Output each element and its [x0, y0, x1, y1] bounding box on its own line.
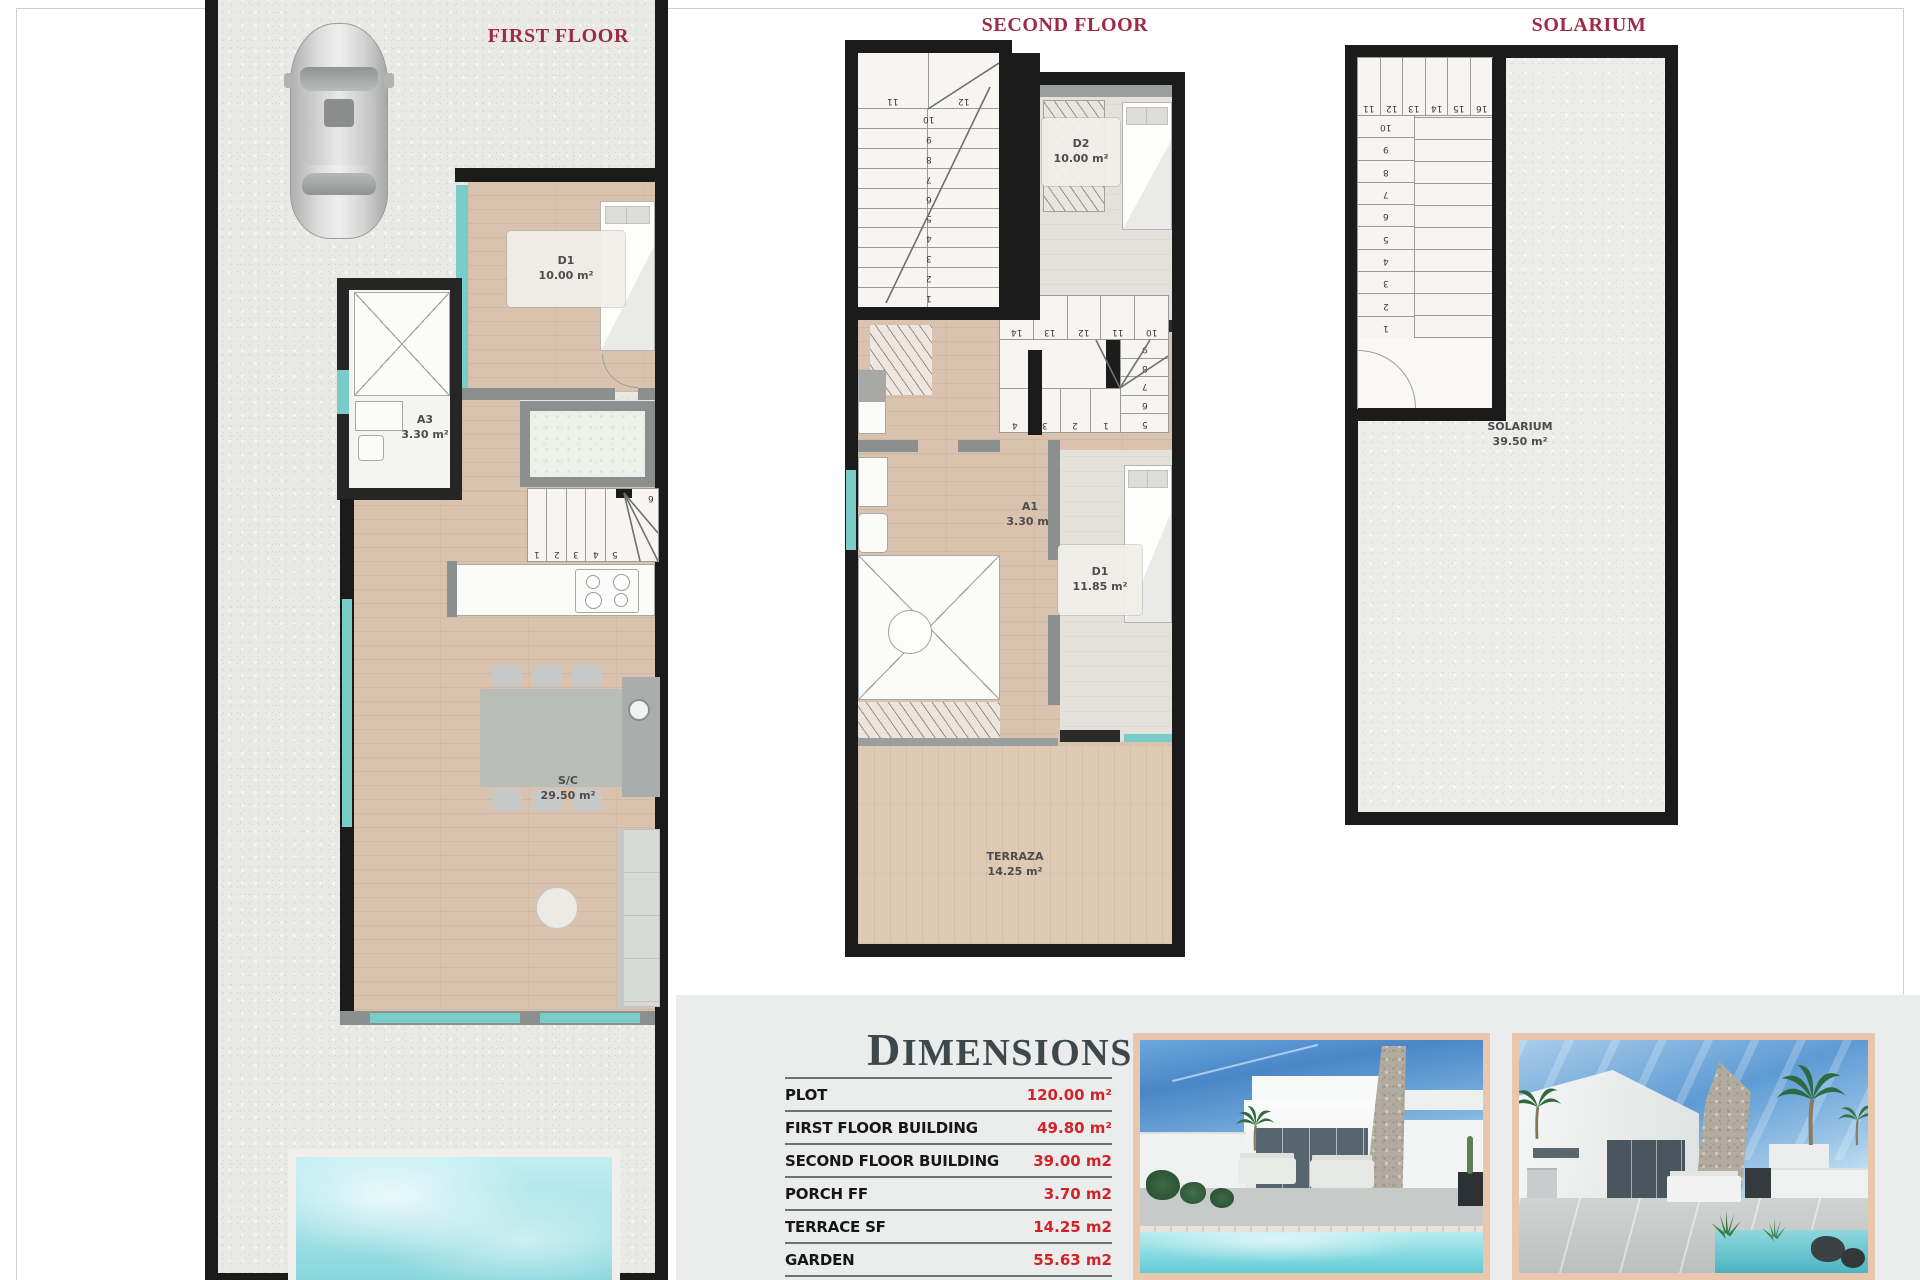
stair-number: 6 — [648, 493, 654, 503]
dining-table — [480, 689, 622, 787]
dimensions-title: DIMENSIONS — [850, 1023, 1150, 1076]
stair-step: 11 — [1358, 58, 1381, 115]
first-floor-staircase: 12345 6 — [528, 489, 658, 561]
pool-water — [1140, 1232, 1483, 1273]
room-label-plate: D1 10.00 m² — [507, 231, 625, 307]
pool — [288, 1149, 620, 1280]
stair-right-wall — [1492, 58, 1506, 421]
stair-corner-step: 6 — [648, 493, 654, 503]
stair-step: 3 — [567, 489, 586, 561]
planter-box — [1458, 1172, 1483, 1206]
dimension-value: 120.00 m² — [1027, 1086, 1112, 1104]
room-code: SOLARIUM — [1450, 420, 1590, 435]
pergola-bar — [1040, 85, 1172, 97]
stair-column: 10987654321 — [858, 109, 999, 307]
stair-newel — [616, 489, 632, 498]
room-code: D1 — [1073, 565, 1128, 580]
terrace-floor — [858, 746, 1172, 944]
d1-left-wall — [1048, 440, 1060, 560]
stair-step: 3 — [1358, 272, 1414, 294]
room-code: A3 — [390, 413, 460, 428]
room-label-d2: D2 10.00 m² — [1054, 137, 1109, 167]
solarium-stair: 111213141516 10987654321 — [1358, 58, 1492, 408]
car-top-view — [290, 23, 388, 239]
bedroom-top-wall — [455, 168, 655, 182]
washbasin — [858, 457, 888, 507]
pouf — [536, 887, 578, 929]
island-sink — [628, 699, 650, 721]
stair-step: 12 — [1068, 296, 1102, 339]
dimension-label: SECOND FLOOR BUILDING — [785, 1152, 999, 1170]
room-label-plate: D1 11.85 m² — [1058, 545, 1142, 615]
stair-flight-bottom: 4321 — [1000, 388, 1120, 432]
sun-lounger — [1310, 1160, 1374, 1188]
stair-step: 7 — [858, 169, 999, 189]
first-floor-plot: FIRST FLOOR D1 10.00 m² — [205, 0, 668, 1280]
stair-divider-wall — [1106, 340, 1120, 388]
dimension-label: FIRST FLOOR BUILDING — [785, 1119, 978, 1137]
stair-step: 1 — [1358, 317, 1414, 338]
stair-side-wall — [1028, 350, 1042, 435]
room-label-d1: D1 10.00 m² — [539, 254, 594, 284]
palm-tree — [1232, 1100, 1278, 1152]
dimension-label: PORCH FF — [785, 1185, 868, 1203]
pillow — [626, 206, 650, 224]
dimension-value: 14.25 m2 — [1033, 1218, 1112, 1236]
stair-step: 4 — [1000, 389, 1030, 432]
room-label-terraza: TERRAZA 14.25 m² — [950, 850, 1080, 880]
car-sunroof — [324, 99, 354, 127]
agave-plant — [1757, 1216, 1791, 1242]
pillow — [1126, 107, 1148, 125]
stair-step: 10 — [858, 109, 999, 129]
stair-step: 5 — [858, 209, 999, 229]
car-rear-window — [302, 173, 376, 195]
stair-step: 1 — [1091, 389, 1120, 432]
terrace-divider — [858, 738, 1058, 746]
car-mirror-left — [284, 73, 294, 88]
stair-step: 4 — [586, 489, 605, 561]
stair-step: 10 — [1358, 116, 1414, 138]
room-area: 3.30 m² — [390, 428, 460, 443]
bath-wall — [858, 440, 918, 452]
dimension-value: 49.80 m² — [1037, 1119, 1112, 1137]
kitchen-island — [622, 677, 660, 797]
dimension-row: TERRACE SF 14.25 m2 — [785, 1209, 1112, 1242]
palm-tree — [1835, 1092, 1875, 1150]
dimension-row: FIRST FLOOR BUILDING 49.80 m² — [785, 1110, 1112, 1143]
stair-top-row: 111213141516 — [1358, 58, 1492, 116]
dining-chair — [492, 665, 522, 687]
stair-step: 2 — [1061, 389, 1091, 432]
cactus — [1467, 1136, 1473, 1174]
solarium-title: SOLARIUM — [1504, 14, 1674, 37]
hall-floor — [462, 399, 520, 491]
bath-wall — [958, 440, 1000, 452]
stair-step: 12 — [1381, 58, 1404, 115]
stair-step: 9 — [858, 129, 999, 149]
villa-render-pool-view — [1133, 1033, 1490, 1280]
stair-step: 9 — [1121, 340, 1168, 359]
stair-step: 9 — [1358, 138, 1414, 160]
room-code: D2 — [1054, 137, 1109, 152]
dining-chair — [532, 665, 562, 687]
dimension-value: 39.00 m2 — [1033, 1152, 1112, 1170]
burner — [614, 593, 628, 607]
shower-drain — [888, 610, 932, 654]
agave-plant — [1705, 1208, 1747, 1240]
stair-step: 11 — [858, 53, 929, 108]
room-area: 39.50 m² — [1450, 435, 1590, 450]
room-label-solarium: SOLARIUM 39.50 m² — [1450, 420, 1590, 450]
room-label-plate: D2 10.00 m² — [1042, 118, 1120, 186]
burner — [585, 592, 602, 609]
tower-right-wall — [1012, 53, 1040, 320]
stair-step: 11 — [1101, 296, 1135, 339]
room-area: 14.25 m² — [950, 865, 1080, 880]
room-area: 29.50 m² — [518, 789, 618, 804]
stair-step: 8 — [1121, 359, 1168, 378]
burner — [613, 574, 630, 591]
toilet — [358, 435, 384, 461]
stair-step: 2 — [858, 268, 999, 288]
stair-step: 7 — [1358, 183, 1414, 205]
stair-step: 7 — [1121, 377, 1168, 396]
stair-step: 6 — [1358, 205, 1414, 227]
dimension-row: PLOT 120.00 m² — [785, 1077, 1112, 1110]
stair-flight-right: 98765 — [1120, 340, 1168, 432]
shrub — [1146, 1170, 1180, 1200]
stair-step: 6 — [1121, 396, 1168, 415]
room-label-a3: A3 3.30 m² — [390, 413, 460, 443]
dimension-label: GARDEN — [785, 1251, 855, 1269]
living-bottom-window — [370, 1013, 520, 1023]
car-windshield — [300, 67, 378, 93]
sofa — [618, 829, 660, 1007]
d1-left-wall — [1048, 615, 1060, 705]
stair-step: 5 — [1121, 414, 1168, 432]
room-code: TERRAZA — [950, 850, 1080, 865]
dining-chair — [572, 665, 602, 687]
stair-column: 10987654321 — [1358, 116, 1414, 338]
stair-step: 8 — [858, 149, 999, 169]
living-bottom-window — [540, 1013, 640, 1023]
shrub — [1180, 1182, 1206, 1204]
room-area: 10.00 m² — [1054, 152, 1109, 167]
stair-step: 3 — [858, 248, 999, 268]
stair-step: 2 — [1358, 294, 1414, 316]
stove — [575, 569, 639, 613]
solarium-plan: 111213141516 10987654321 SOLARIUM 39.50 … — [1345, 45, 1678, 825]
burner — [586, 575, 600, 589]
cabinet — [858, 370, 886, 434]
living-left-window — [342, 599, 352, 827]
room-code: S/C — [518, 774, 618, 789]
bathroom-window — [337, 370, 349, 414]
dimension-label: TERRACE SF — [785, 1218, 886, 1236]
dimension-row: POOL 10.00 m2 — [785, 1275, 1112, 1280]
outdoor-sofa — [1667, 1176, 1741, 1202]
stair-step: 16 — [1471, 58, 1493, 115]
bathroom-2 — [520, 401, 655, 487]
room-area: 10.00 m² — [539, 269, 594, 284]
garage-door — [1527, 1168, 1557, 1200]
room-code: D1 — [539, 254, 594, 269]
sun-lounger — [1238, 1158, 1296, 1184]
winder-steps: 1112 — [858, 53, 999, 109]
second-floor-stair-tower: 1112 10987654321 — [845, 40, 1012, 320]
wall-stub — [638, 388, 655, 400]
room-label-d1-sf: D1 11.85 m² — [1073, 565, 1128, 595]
planter-box — [1745, 1168, 1771, 1198]
rock — [1841, 1248, 1865, 1268]
stair-step: 4 — [858, 228, 999, 248]
stair-step: 2 — [547, 489, 566, 561]
villa-render-side-view — [1512, 1033, 1875, 1280]
second-floor-title: SECOND FLOOR — [960, 14, 1170, 37]
dimension-row: PORCH FF 3.70 m2 — [785, 1176, 1112, 1209]
bedroom-bottom-wall — [455, 388, 615, 400]
stair-landing — [1358, 338, 1492, 408]
car-mirror-right — [384, 73, 394, 88]
stair-step: 8 — [1358, 161, 1414, 183]
bed-d2 — [1122, 102, 1172, 230]
sf-left-window — [846, 470, 856, 550]
terrace-slider — [1124, 734, 1172, 742]
stair-step: 5 — [606, 489, 624, 561]
dimension-row: SECOND FLOOR BUILDING 39.00 m2 — [785, 1143, 1112, 1176]
stair-step: 13 — [1403, 58, 1426, 115]
rock — [1811, 1236, 1845, 1262]
stair-parallel-lane — [1414, 116, 1493, 338]
stair-step: 10 — [1135, 296, 1168, 339]
stair-flight: 12345 — [528, 489, 624, 561]
door-arc — [1358, 350, 1416, 408]
stair-step: 14 — [1426, 58, 1449, 115]
kitchen-wall-stub — [447, 561, 457, 617]
stair-step: 12 — [929, 53, 999, 108]
stair-step: 1 — [528, 489, 547, 561]
floorplan-sheet: FIRST FLOOR D1 10.00 m² — [0, 0, 1920, 1280]
stair-step: 1 — [858, 288, 999, 307]
d1-bottom-wall — [1060, 730, 1120, 742]
shower-tray — [354, 292, 450, 396]
pillow — [1147, 470, 1168, 488]
room-label-sc: S/C 29.50 m² — [518, 774, 618, 804]
dimension-value: 55.63 m2 — [1033, 1251, 1112, 1269]
room-area: 11.85 m² — [1073, 580, 1128, 595]
palm-tree — [1512, 1066, 1565, 1150]
stair-step: 15 — [1448, 58, 1471, 115]
stair-step: 5 — [1358, 227, 1414, 249]
first-floor-title: FIRST FLOOR — [488, 25, 629, 48]
dimensions-table: PLOT 120.00 m² FIRST FLOOR BUILDING 49.8… — [785, 1077, 1112, 1280]
dimension-row: GARDEN 55.63 m2 — [785, 1242, 1112, 1275]
toilet — [858, 513, 888, 553]
villa-upper-slab — [1252, 1076, 1386, 1102]
pillow — [1146, 107, 1168, 125]
dimension-value: 3.70 m2 — [1044, 1185, 1112, 1203]
shrub — [1210, 1188, 1234, 1208]
dimension-label: PLOT — [785, 1086, 827, 1104]
stair-step: 6 — [858, 189, 999, 209]
stair-step: 4 — [1358, 250, 1414, 272]
